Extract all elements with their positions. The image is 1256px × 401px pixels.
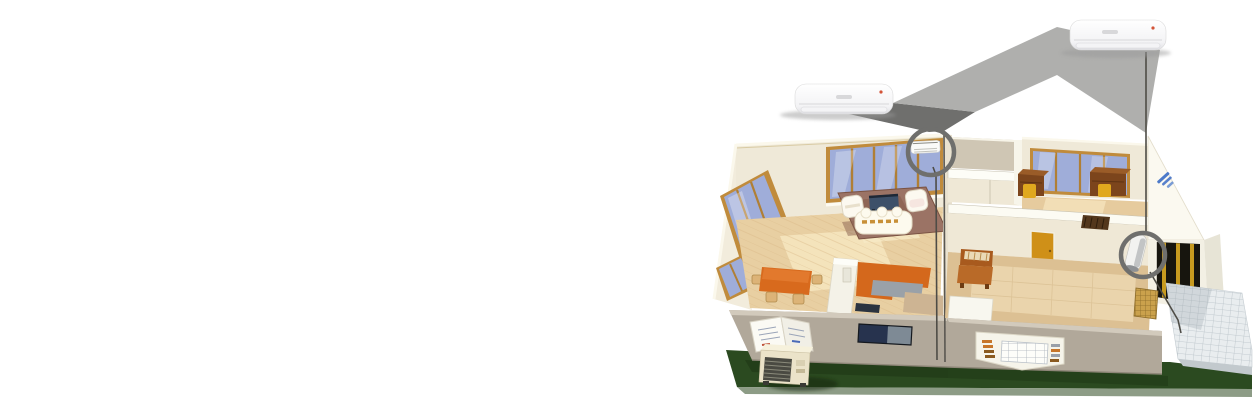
beam-connector [893,27,1057,112]
house-illustration [0,0,1256,401]
closet-back-wall [952,137,1014,171]
brand-mark [1102,30,1118,34]
sofa [855,207,912,234]
terrace [1166,283,1252,375]
study-desk-right [1090,167,1131,197]
armchair-right [905,189,929,213]
panel-blue-mark [792,341,800,342]
wooden-bench [957,249,993,289]
entrance-lattice-cabinet [1134,288,1158,319]
page [0,0,1256,401]
dining-chair [766,292,777,302]
indoor-unit-product-right [1061,20,1171,58]
indoor-unit-product-left [780,84,896,120]
study-chair-left [1023,184,1036,198]
right-section [945,136,1252,375]
unit-vent-flap [801,107,887,112]
study-chair-right [1098,184,1111,197]
dining-chair [812,275,822,284]
condenser-label [796,360,805,366]
unit-vent-flap [1076,43,1160,48]
left-section [714,134,952,391]
power-indicator [1151,26,1154,29]
kitchen-cabinets [903,292,946,316]
dining-chair [793,294,804,304]
installed-indoor-unit-living [911,140,941,154]
kitchen-sink [843,268,851,282]
wall-vent-grate [1081,215,1110,230]
power-indicator [879,90,882,93]
entrance-gable [1148,136,1204,240]
brand-mark [836,95,852,99]
